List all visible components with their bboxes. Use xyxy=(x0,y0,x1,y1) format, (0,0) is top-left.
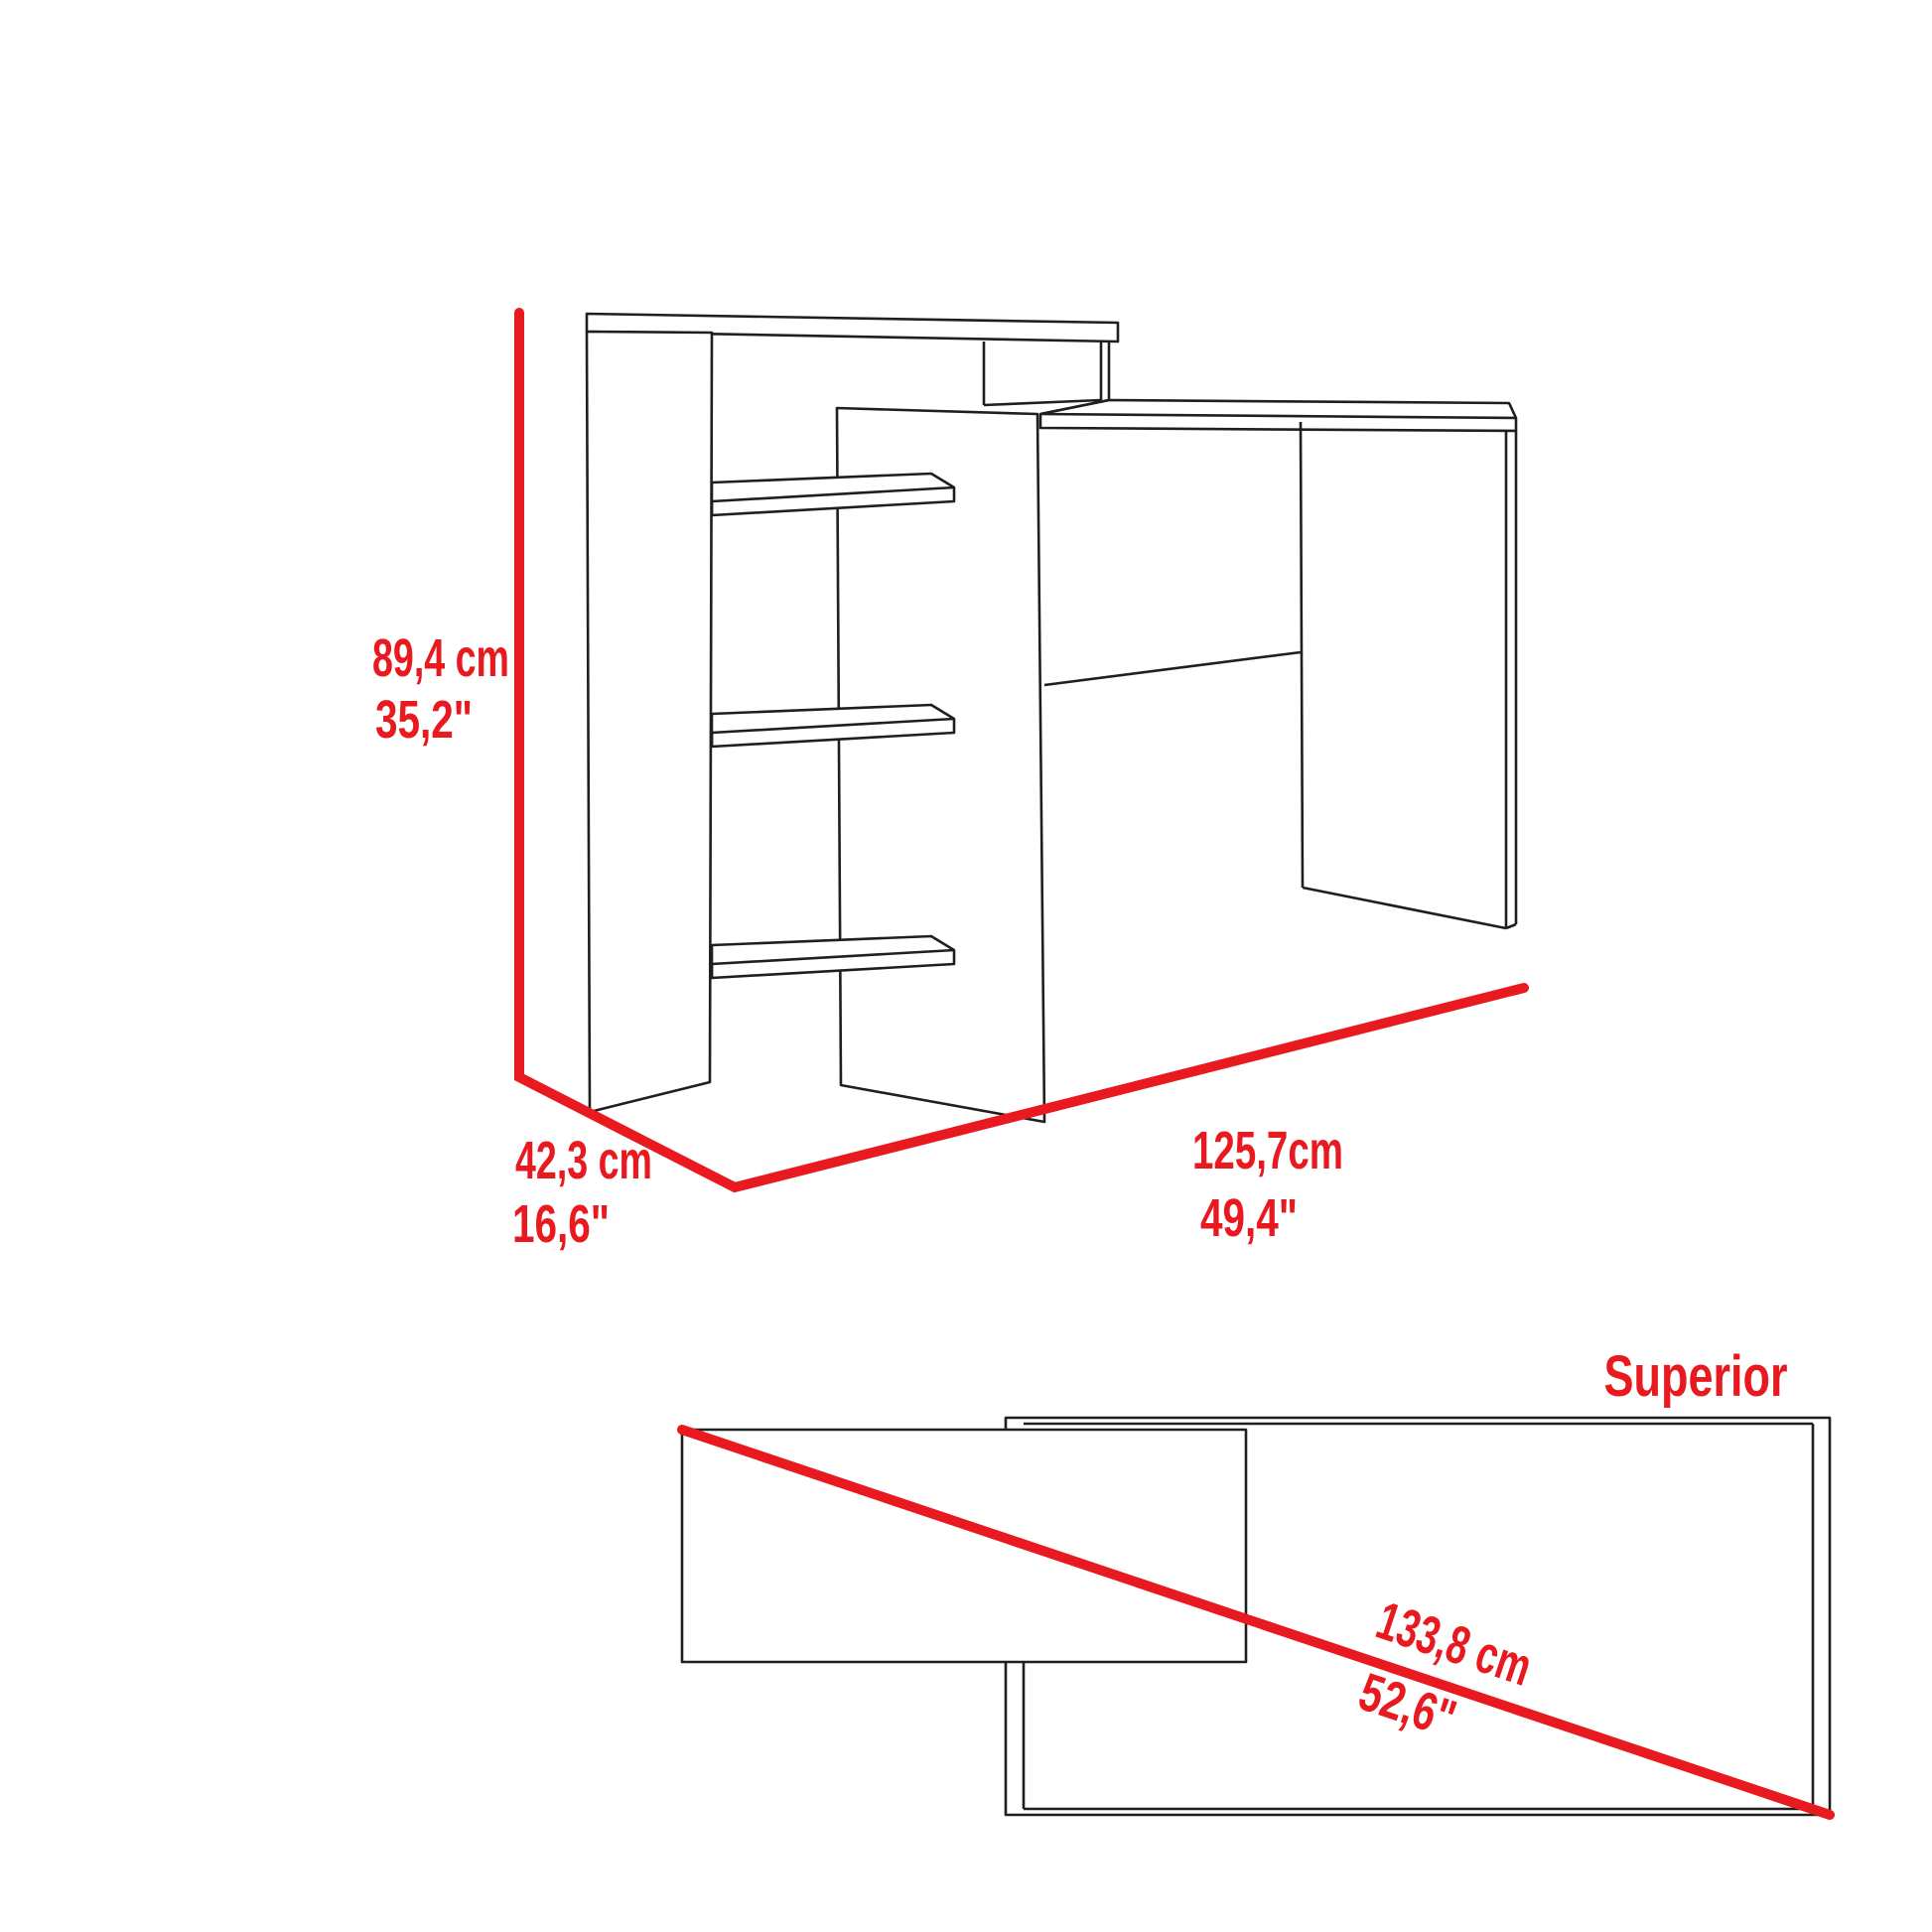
width-label-cm: 125,7cm xyxy=(1192,1121,1343,1180)
dimension-diagram-page: 89,4 cm 35,2" 42,3 cm 16,6" 125,7cm 49,4… xyxy=(0,0,1932,1932)
top-view-title: Superior xyxy=(1604,1344,1788,1409)
bookcase-left-panel xyxy=(587,332,712,1112)
desk-back-panel-edge xyxy=(1044,652,1301,685)
perspective-view xyxy=(587,314,1516,1122)
desk-top xyxy=(1040,400,1516,431)
height-label-cm: 89,4 cm xyxy=(372,628,509,688)
height-label-in: 35,2" xyxy=(375,690,473,750)
depth-label-in: 16,6" xyxy=(512,1194,610,1254)
desk-right-panel xyxy=(1301,422,1516,928)
bookcase-middle-panel xyxy=(837,408,1044,1122)
depth-label-cm: 42,3 cm xyxy=(515,1131,652,1190)
top-view-bookcase-top xyxy=(682,1430,1246,1662)
dimension-diagram: 89,4 cm 35,2" 42,3 cm 16,6" 125,7cm 49,4… xyxy=(0,0,1932,1932)
bridge-section xyxy=(984,339,1109,405)
width-label-in: 49,4" xyxy=(1200,1188,1298,1248)
